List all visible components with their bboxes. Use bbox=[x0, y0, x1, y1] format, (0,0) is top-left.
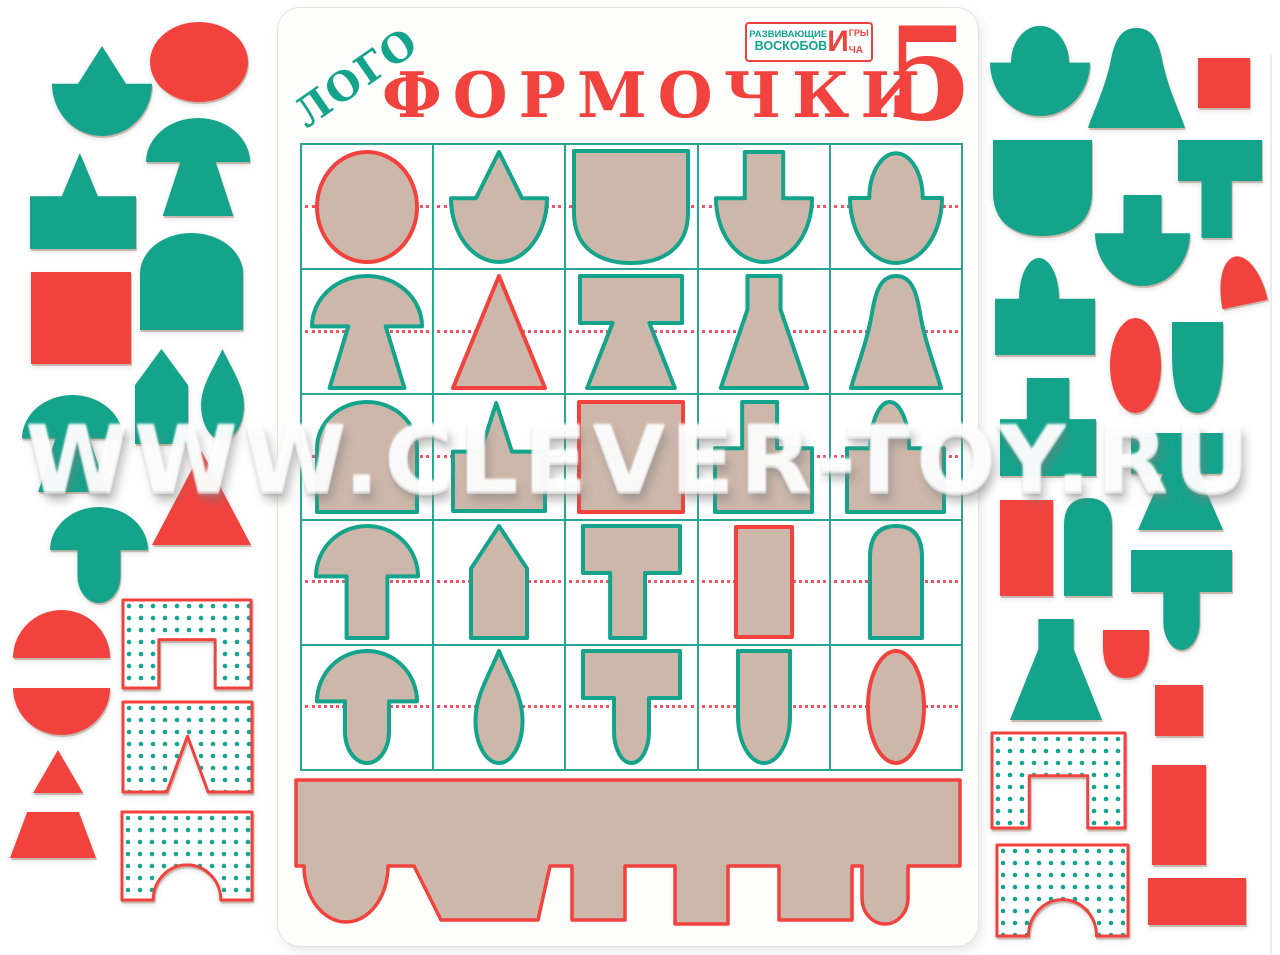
grid-cell-r4c4 bbox=[699, 521, 829, 644]
cutout-acorn bbox=[850, 151, 942, 263]
piece-bridge_arch-dotted bbox=[997, 845, 1128, 936]
grid-cell-r2c3 bbox=[566, 270, 696, 393]
piece-bridge_sq-dotted bbox=[123, 600, 251, 688]
piece-t_shape-teal bbox=[1178, 140, 1262, 238]
piece-bridge_v-dotted bbox=[123, 702, 252, 792]
cutout-dome_rect bbox=[847, 402, 944, 512]
title-number: 5 bbox=[884, 8, 973, 142]
cutout-cone_dome bbox=[451, 152, 547, 262]
cutout-t_inverted bbox=[715, 402, 812, 512]
grid-cell-r5c5 bbox=[831, 646, 961, 769]
piece-bullet-teal bbox=[1064, 498, 1112, 596]
piece-acorn-teal bbox=[990, 24, 1090, 116]
piece-arch-teal bbox=[140, 233, 243, 330]
piece-rect_dome-teal bbox=[1095, 195, 1190, 286]
publisher-text-left: РАЗВИВАЮЩИЕ ВОСКОБОВ bbox=[749, 30, 827, 53]
grid-cell-r3c1 bbox=[302, 395, 432, 518]
grid-cell-r1c3 bbox=[566, 145, 696, 268]
photo-edge-line bbox=[1270, 55, 1272, 955]
piece-bell-teal bbox=[1088, 28, 1185, 128]
grid-cell-r1c4 bbox=[699, 145, 829, 268]
grid-cell-r1c5 bbox=[831, 145, 961, 268]
piece-bowl-red bbox=[13, 688, 110, 735]
grid-cell-r1c2 bbox=[434, 145, 564, 268]
grid-cell-r3c3 bbox=[566, 395, 696, 518]
piece-vrect-red bbox=[1000, 500, 1053, 596]
cutout-arch bbox=[317, 402, 417, 512]
cutout-circle bbox=[317, 152, 417, 262]
cutout-triangle bbox=[453, 276, 545, 388]
publisher-badge: РАЗВИВАЮЩИЕ ВОСКОБОВ И ГРЫ ЧА bbox=[745, 22, 873, 62]
piece-dome-red bbox=[13, 610, 110, 658]
product-photo: ЛОГО ФОРМОЧКИ 5 РАЗВИВАЮЩИЕ ВОСКОБОВ И Г… bbox=[0, 0, 1280, 955]
grid-cell-r5c3 bbox=[566, 646, 696, 769]
publisher-big-letter: И bbox=[827, 29, 849, 55]
publisher-word1-suffix: ГРЫ bbox=[849, 29, 869, 38]
piece-square-red bbox=[31, 272, 131, 364]
cutout-house bbox=[471, 526, 527, 638]
piece-oval-red bbox=[1110, 318, 1161, 413]
game-board: ЛОГО ФОРМОЧКИ 5 РАЗВИВАЮЩИЕ ВОСКОБОВ И Г… bbox=[278, 8, 978, 946]
grid-cell-r5c1 bbox=[302, 646, 432, 769]
piece-spool-teal bbox=[1131, 433, 1230, 530]
piece-triangle-red bbox=[152, 451, 251, 545]
grid-cell-r1c1 bbox=[302, 145, 432, 268]
grid-cell-r2c5 bbox=[831, 270, 961, 393]
piece-square-red bbox=[1155, 685, 1203, 736]
piece-spike_rect-teal bbox=[30, 153, 136, 249]
piece-bridge_sq-dotted bbox=[992, 733, 1125, 828]
cutout-shield_sq bbox=[574, 151, 688, 263]
cutout-mushroom_round bbox=[317, 651, 417, 763]
piece-square-red bbox=[1198, 58, 1250, 108]
cutout-teardrop bbox=[471, 651, 527, 763]
piece-mushroom_trap-teal bbox=[146, 118, 250, 216]
piece-vrect-red bbox=[1152, 765, 1206, 865]
cutout-t_round bbox=[583, 651, 680, 763]
grid-cell-r4c1 bbox=[302, 521, 432, 644]
piece-hrect-red bbox=[1148, 878, 1246, 925]
piece-bridge_arch-dotted bbox=[122, 812, 252, 900]
grid-cell-r5c4 bbox=[699, 646, 829, 769]
bottom-tray-cutout bbox=[292, 780, 964, 932]
cutout-rect_dome bbox=[716, 152, 812, 262]
publisher-word2-suffix: ЧА bbox=[849, 46, 869, 56]
cutout-spike_rect bbox=[453, 403, 545, 511]
grid-cell-r2c4 bbox=[699, 270, 829, 393]
piece-dome-red bbox=[1212, 252, 1267, 309]
piece-tooth-teal bbox=[1172, 322, 1223, 413]
publisher-line2: ВОСКОБОВ bbox=[755, 40, 828, 53]
publisher-text-right: ГРЫ ЧА bbox=[849, 29, 869, 56]
stencil-grid bbox=[300, 143, 963, 771]
title-main-word: ФОРМОЧКИ bbox=[382, 58, 931, 132]
piece-triangle-red bbox=[33, 750, 83, 793]
piece-teardrop-teal bbox=[197, 349, 248, 440]
piece-tower2-teal bbox=[1000, 378, 1096, 476]
cutout-flask bbox=[718, 276, 810, 388]
cutout-square bbox=[579, 402, 683, 512]
piece-circle-red bbox=[150, 22, 248, 102]
piece-flask-teal bbox=[1007, 619, 1105, 720]
cutout-bell bbox=[851, 276, 941, 388]
cutout-bullet bbox=[870, 526, 922, 638]
grid-cell-r5c2 bbox=[434, 646, 564, 769]
grid-cell-r4c5 bbox=[831, 521, 961, 644]
cutout-mushroom_trap bbox=[312, 276, 422, 388]
grid-cell-r4c3 bbox=[566, 521, 696, 644]
piece-shield_sq-teal bbox=[993, 140, 1092, 236]
grid-cell-r3c4 bbox=[699, 395, 829, 518]
piece-tooth-red bbox=[1103, 630, 1149, 678]
grid-cell-r3c2 bbox=[434, 395, 564, 518]
piece-mushroom_trap-teal bbox=[22, 395, 123, 492]
piece-mushroom_round-teal bbox=[50, 507, 148, 603]
grid-cell-r2c2 bbox=[434, 270, 564, 393]
cutout-u_rect bbox=[738, 651, 790, 763]
cutout-spool bbox=[580, 276, 682, 388]
grid-cell-r3c5 bbox=[831, 395, 961, 518]
cutout-mushroom_rect bbox=[316, 526, 418, 638]
piece-dome_rect-teal bbox=[995, 258, 1095, 355]
piece-cone_dome-teal bbox=[52, 46, 152, 136]
grid-cell-r2c1 bbox=[302, 270, 432, 393]
cutout-t_shape bbox=[583, 526, 680, 638]
piece-house-teal bbox=[135, 349, 188, 444]
cutout-vrect bbox=[736, 527, 792, 637]
cutout-oval bbox=[868, 651, 924, 763]
grid-cell-r4c2 bbox=[434, 521, 564, 644]
piece-trapezoid-red bbox=[10, 812, 96, 858]
